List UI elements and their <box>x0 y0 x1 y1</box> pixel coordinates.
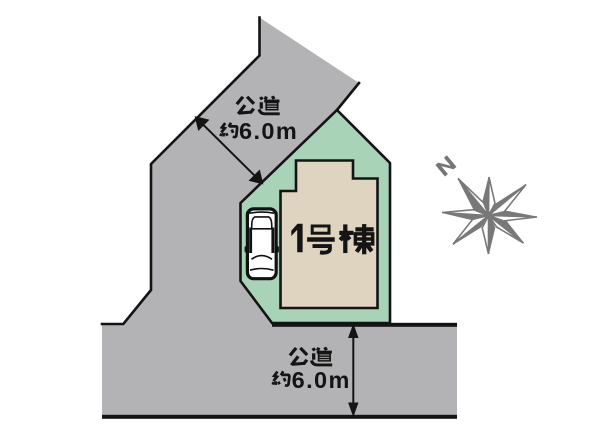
svg-text:6.0m: 6.0m <box>292 367 351 393</box>
svg-text:6.0m: 6.0m <box>239 118 298 144</box>
